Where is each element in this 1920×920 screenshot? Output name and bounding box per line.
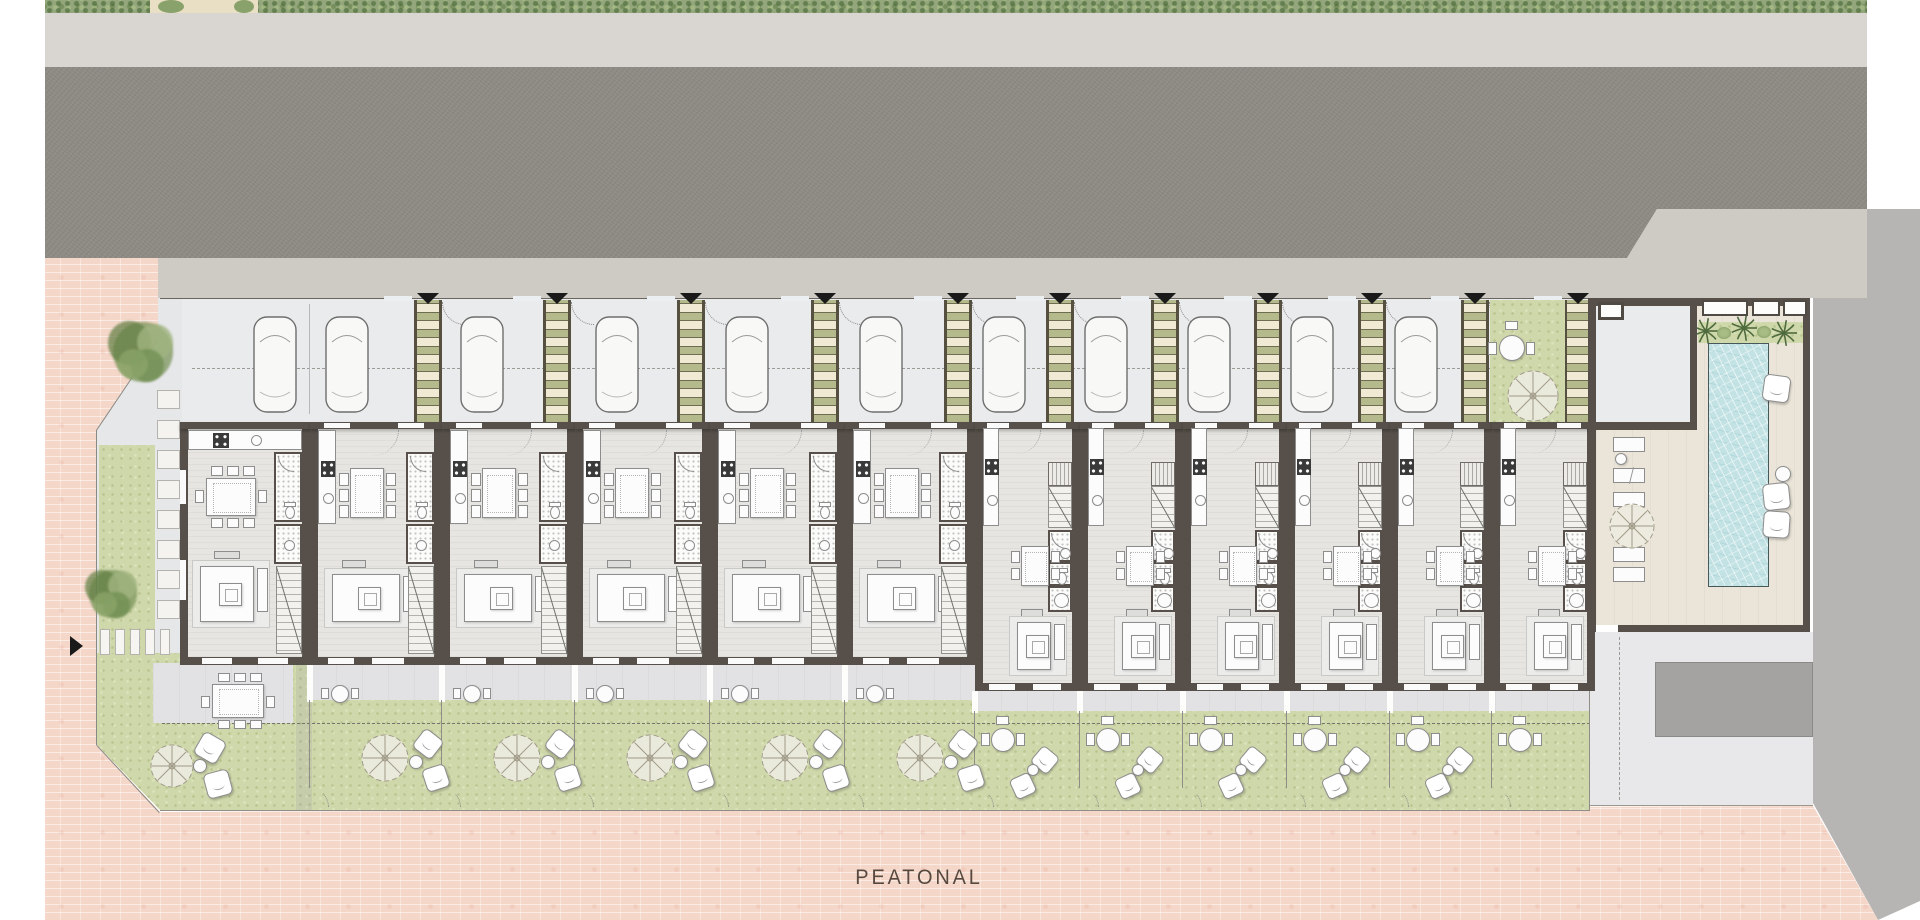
entry-door-gap bbox=[398, 423, 424, 428]
chair bbox=[1323, 568, 1332, 580]
chair bbox=[721, 688, 729, 699]
site-plan: PEATONAL bbox=[0, 0, 1920, 920]
table-top-detail bbox=[890, 475, 916, 513]
crosswalk-bar bbox=[100, 629, 110, 655]
dining-table bbox=[615, 468, 649, 518]
entrance-pergola bbox=[944, 300, 972, 422]
side-table bbox=[1132, 764, 1144, 776]
parked-car-icon bbox=[859, 316, 903, 413]
chair bbox=[518, 489, 528, 502]
chair bbox=[921, 473, 931, 486]
chair bbox=[195, 490, 204, 503]
party-wall bbox=[434, 422, 442, 665]
party-wall bbox=[967, 422, 975, 665]
chair bbox=[874, 473, 884, 486]
chair bbox=[1363, 568, 1372, 580]
table-top-detail bbox=[213, 483, 251, 512]
terrace-divider bbox=[307, 663, 313, 702]
chair bbox=[1528, 568, 1537, 580]
shower-icon bbox=[813, 456, 829, 472]
chair bbox=[1259, 551, 1268, 563]
stove-icon bbox=[1297, 459, 1311, 475]
tree-canopy bbox=[118, 349, 148, 379]
garden-fence-bottom bbox=[160, 810, 1590, 811]
side-table bbox=[1235, 764, 1247, 776]
basin-icon bbox=[549, 540, 560, 551]
coffee-table bbox=[1234, 635, 1257, 658]
party-wall bbox=[575, 422, 583, 665]
cushion-fold bbox=[1330, 782, 1342, 793]
hall-closet bbox=[1358, 462, 1382, 486]
sun-lounger bbox=[1613, 547, 1645, 562]
pool-area-wall bbox=[1803, 298, 1810, 632]
pool-wall-window bbox=[1702, 300, 1748, 316]
shower-icon bbox=[1566, 533, 1582, 549]
basin-icon bbox=[819, 540, 830, 551]
chair bbox=[1204, 716, 1217, 725]
chair bbox=[604, 489, 614, 502]
chair bbox=[211, 466, 223, 476]
hall-closet bbox=[1048, 462, 1072, 486]
kitchen-counter bbox=[318, 430, 336, 524]
basin-icon bbox=[284, 540, 295, 551]
shrub-icon bbox=[1717, 327, 1731, 339]
bistro-table bbox=[463, 685, 481, 703]
chair bbox=[1101, 716, 1114, 725]
tree-canopy bbox=[93, 592, 117, 616]
chair bbox=[1156, 568, 1165, 580]
table-top-detail bbox=[487, 475, 513, 513]
stair-flight-line bbox=[676, 567, 703, 655]
stair-flight-line bbox=[1151, 487, 1176, 529]
stepping-stone bbox=[157, 510, 180, 529]
tv-unit bbox=[214, 551, 240, 559]
parked-car-icon bbox=[982, 316, 1026, 413]
coffee-table-detail bbox=[1549, 641, 1562, 654]
side-table bbox=[193, 759, 207, 773]
armchair bbox=[1159, 624, 1170, 660]
laundry bbox=[1460, 586, 1484, 612]
terrace-door-gap bbox=[1197, 684, 1223, 690]
terrace-divider bbox=[572, 663, 578, 702]
cushion-fold bbox=[202, 743, 216, 756]
kitchen-counter bbox=[1088, 428, 1104, 526]
facade-wall-top bbox=[180, 422, 310, 429]
stove-icon bbox=[1400, 459, 1414, 475]
dining-table bbox=[885, 468, 919, 518]
dining-table bbox=[1333, 546, 1361, 586]
garden-fence bbox=[1589, 691, 1590, 810]
coffee-table-detail bbox=[364, 593, 377, 606]
garden-fence bbox=[1079, 711, 1080, 788]
basin-icon bbox=[455, 493, 466, 504]
sun-lounger bbox=[1613, 567, 1645, 582]
dining-table bbox=[350, 468, 384, 518]
stove-icon bbox=[721, 461, 735, 477]
pool-parking-spot bbox=[1596, 306, 1690, 422]
cushion-fold bbox=[965, 774, 978, 785]
entry-marker-icon bbox=[1257, 293, 1279, 304]
garden-table bbox=[1303, 728, 1327, 752]
party-wall bbox=[1390, 422, 1398, 691]
coffee-table-detail bbox=[225, 589, 238, 602]
party-wall bbox=[1492, 422, 1500, 691]
tv-unit bbox=[742, 560, 766, 568]
chair bbox=[856, 688, 864, 699]
party-wall bbox=[1183, 422, 1191, 691]
armchair bbox=[257, 568, 268, 612]
parked-car-icon bbox=[1290, 316, 1334, 413]
garden-table bbox=[1406, 728, 1430, 752]
terrace-divider bbox=[972, 691, 978, 713]
stair-flight-line bbox=[1048, 487, 1073, 529]
entry-door-gap bbox=[1454, 423, 1478, 428]
entry-marker-icon bbox=[1154, 293, 1176, 304]
chair bbox=[351, 688, 359, 699]
chair bbox=[1505, 321, 1518, 330]
crosswalk-bar bbox=[130, 629, 140, 655]
chair bbox=[1488, 342, 1497, 355]
chair bbox=[211, 518, 223, 528]
toilet-icon bbox=[950, 506, 960, 519]
stair-flight-line bbox=[1358, 487, 1383, 529]
bathroom bbox=[539, 524, 567, 564]
chair bbox=[604, 505, 614, 518]
stove-icon bbox=[1193, 459, 1207, 475]
laundry bbox=[1151, 586, 1175, 612]
garden-fence bbox=[309, 700, 310, 788]
kitchen-counter bbox=[1398, 428, 1414, 526]
cushion-fold bbox=[1433, 782, 1445, 793]
crosswalk-bar bbox=[145, 629, 155, 655]
stair-flight-line bbox=[941, 567, 968, 655]
entry-marker-icon bbox=[1049, 293, 1071, 304]
cushion-fold bbox=[820, 739, 833, 752]
terrace-divider bbox=[842, 663, 848, 702]
double-spot-divider bbox=[309, 304, 310, 414]
table-top-detail bbox=[1233, 552, 1255, 583]
cushion-fold bbox=[1018, 782, 1030, 793]
coffee-table bbox=[490, 587, 513, 610]
cushion-fold bbox=[212, 780, 226, 791]
party-wall bbox=[310, 422, 318, 665]
entry-arrow-icon bbox=[70, 636, 83, 656]
pool-parasol bbox=[1609, 503, 1655, 549]
chair bbox=[266, 696, 275, 708]
party-wall bbox=[1484, 422, 1492, 691]
chair bbox=[921, 489, 931, 502]
patio-table bbox=[1499, 335, 1525, 361]
stove-icon bbox=[856, 461, 870, 477]
stair-flight-line bbox=[408, 567, 435, 655]
coffee-table-detail bbox=[1447, 641, 1460, 654]
staircase bbox=[676, 566, 702, 654]
cushion-fold bbox=[552, 739, 565, 752]
dining-table bbox=[1538, 546, 1566, 586]
bistro-table bbox=[866, 685, 884, 703]
towel-line bbox=[1628, 467, 1633, 484]
staircase bbox=[1255, 486, 1279, 528]
coffee-table bbox=[1543, 635, 1566, 658]
entrance-pergola bbox=[1461, 300, 1489, 422]
staircase bbox=[811, 566, 837, 654]
armchair bbox=[1262, 624, 1273, 660]
party-wall bbox=[1287, 422, 1295, 691]
basin-icon bbox=[1195, 495, 1206, 506]
side-table bbox=[541, 755, 555, 769]
chair bbox=[996, 716, 1009, 725]
table-top-detail bbox=[219, 689, 259, 715]
terrace-door-gap bbox=[1033, 684, 1061, 690]
entrance-pergola bbox=[811, 300, 839, 422]
chair bbox=[1466, 551, 1475, 563]
stove-icon bbox=[1090, 459, 1104, 475]
entrance-pergola bbox=[1254, 300, 1282, 422]
chair bbox=[518, 505, 528, 518]
washer-icon bbox=[1054, 593, 1069, 608]
washer-icon bbox=[1364, 593, 1379, 608]
terrace-divider bbox=[707, 663, 713, 702]
basin-icon bbox=[323, 493, 334, 504]
stair-flight-line bbox=[541, 567, 568, 655]
stepping-stone bbox=[157, 600, 180, 619]
bistro-table bbox=[731, 685, 749, 703]
coffee-table bbox=[1338, 635, 1361, 658]
basin-icon bbox=[858, 493, 869, 504]
basin-icon bbox=[987, 495, 998, 506]
coffee-table bbox=[1026, 635, 1049, 658]
terrace-door-gap bbox=[1404, 684, 1430, 690]
chair bbox=[981, 733, 990, 746]
basin-icon bbox=[949, 540, 960, 551]
cushion-fold bbox=[1226, 782, 1238, 793]
terrace-door-gap bbox=[258, 658, 288, 664]
hall-closet bbox=[1563, 462, 1587, 486]
chair bbox=[786, 473, 796, 486]
chair bbox=[1528, 551, 1537, 563]
dining-table bbox=[1021, 546, 1049, 586]
terrace-door-gap bbox=[863, 658, 889, 664]
chair bbox=[786, 489, 796, 502]
stair-flight-line bbox=[1563, 487, 1588, 529]
kitchen-counter bbox=[1191, 428, 1207, 526]
pool-area-wall bbox=[1618, 625, 1810, 632]
terrace-door-gap bbox=[504, 658, 536, 664]
bathroom bbox=[674, 524, 702, 564]
side-window-gap bbox=[180, 560, 186, 600]
chair bbox=[1513, 716, 1526, 725]
chair bbox=[471, 473, 481, 486]
chair bbox=[1121, 733, 1130, 746]
bathroom bbox=[274, 452, 302, 522]
hall-closet bbox=[1151, 462, 1175, 486]
laundry bbox=[1255, 586, 1279, 612]
coffee-table-detail bbox=[629, 593, 642, 606]
chair bbox=[1466, 568, 1475, 580]
chair bbox=[386, 489, 396, 502]
staircase bbox=[276, 566, 302, 654]
terrace-divider bbox=[439, 663, 445, 702]
chair bbox=[386, 505, 396, 518]
coffee-table-detail bbox=[1240, 641, 1253, 654]
armchair bbox=[1469, 624, 1480, 660]
cushion-fold bbox=[1123, 782, 1135, 793]
washer-icon bbox=[1261, 593, 1276, 608]
entry-marker-icon bbox=[1361, 293, 1383, 304]
basin-icon bbox=[251, 435, 262, 446]
kitchen-counter bbox=[1295, 428, 1311, 526]
party-wall bbox=[1072, 422, 1080, 691]
chair bbox=[751, 688, 759, 699]
party-wall bbox=[1279, 422, 1287, 691]
side-table bbox=[809, 755, 823, 769]
cushion-fold bbox=[430, 774, 443, 785]
lounge-cushion bbox=[1761, 373, 1791, 403]
chair bbox=[1016, 733, 1025, 746]
terrace-door-gap bbox=[637, 658, 669, 664]
entry-marker-icon bbox=[947, 293, 969, 304]
chair bbox=[234, 720, 246, 729]
washer-icon bbox=[1157, 593, 1172, 608]
walkway-dashed-line bbox=[1619, 637, 1620, 800]
chair bbox=[1219, 568, 1228, 580]
stepping-stone bbox=[157, 390, 180, 409]
cushion-fold bbox=[1038, 755, 1050, 767]
chair bbox=[1411, 716, 1424, 725]
garden-parasol bbox=[361, 734, 409, 782]
entrance-gate-gap bbox=[781, 296, 809, 301]
party-wall bbox=[710, 422, 718, 665]
side-table bbox=[1339, 764, 1351, 776]
party-wall bbox=[837, 422, 845, 665]
facade-wall-bottom bbox=[180, 657, 310, 665]
tv-unit bbox=[877, 560, 901, 568]
entry-door-gap bbox=[1557, 423, 1581, 428]
chair bbox=[1323, 551, 1332, 563]
chair bbox=[234, 673, 246, 682]
chair bbox=[1526, 342, 1535, 355]
chair bbox=[1533, 733, 1542, 746]
party-wall bbox=[1175, 422, 1183, 691]
stair-flight-line bbox=[811, 567, 838, 655]
dining-table bbox=[482, 468, 516, 518]
party-wall bbox=[567, 422, 575, 665]
table-top-detail bbox=[1337, 552, 1359, 583]
side-table bbox=[674, 755, 688, 769]
terrace-door-gap bbox=[202, 658, 232, 664]
staircase bbox=[1151, 486, 1175, 528]
lounge-cushion bbox=[1762, 510, 1791, 539]
terrace-door-gap bbox=[372, 658, 404, 664]
chair bbox=[339, 505, 349, 518]
walkway-edge-line bbox=[1590, 805, 1813, 806]
stepping-stone bbox=[157, 420, 180, 439]
parked-car-icon bbox=[1084, 316, 1128, 413]
cushion-fold bbox=[695, 774, 708, 785]
dining-table bbox=[750, 468, 784, 518]
chair bbox=[1498, 733, 1507, 746]
table-top-detail bbox=[620, 475, 646, 513]
chair bbox=[739, 505, 749, 518]
side-table bbox=[1615, 453, 1627, 465]
coffee-table bbox=[893, 587, 916, 610]
garden-parasol bbox=[761, 734, 809, 782]
basin-icon bbox=[1504, 495, 1515, 506]
chair bbox=[201, 696, 210, 708]
terrace-door-gap bbox=[328, 658, 354, 664]
chair bbox=[651, 473, 661, 486]
party-wall bbox=[1080, 422, 1088, 691]
chair bbox=[1308, 716, 1321, 725]
table-top-detail bbox=[1542, 552, 1564, 583]
basin-icon bbox=[1060, 548, 1071, 559]
terrace-door-gap bbox=[460, 658, 486, 664]
sidewalk-top bbox=[45, 13, 1867, 67]
coffee-table-detail bbox=[899, 593, 912, 606]
chair bbox=[1086, 733, 1095, 746]
shower-icon bbox=[1258, 533, 1274, 549]
garden-fence bbox=[1389, 711, 1390, 788]
entrance-pergola bbox=[414, 300, 442, 422]
terrace-door-gap bbox=[1550, 684, 1578, 690]
garden-table bbox=[1199, 728, 1223, 752]
entrance-pergola bbox=[1046, 300, 1074, 422]
tv-unit bbox=[607, 560, 631, 568]
terrace-divider bbox=[1077, 691, 1083, 713]
chair bbox=[1363, 551, 1372, 563]
chair bbox=[1328, 733, 1337, 746]
stair-flight-line bbox=[276, 567, 303, 655]
chair bbox=[1116, 568, 1125, 580]
left-lawn-strip bbox=[99, 445, 155, 653]
basin-icon bbox=[1299, 495, 1310, 506]
outdoor-dining-table bbox=[212, 684, 264, 718]
chair bbox=[243, 466, 255, 476]
parked-car-icon bbox=[325, 316, 369, 413]
bathroom bbox=[539, 452, 567, 522]
chair bbox=[1156, 551, 1165, 563]
parked-car-icon bbox=[253, 316, 297, 413]
entrance-gate-gap bbox=[384, 296, 412, 301]
terrace-door-gap bbox=[593, 658, 619, 664]
front-window-gap bbox=[456, 423, 482, 428]
basin-icon bbox=[1267, 548, 1278, 559]
entry-door-gap bbox=[1352, 423, 1376, 428]
table-top-detail bbox=[1025, 552, 1047, 583]
entry-marker-icon bbox=[1567, 293, 1589, 304]
coffee-table-detail bbox=[496, 593, 509, 606]
chair bbox=[1426, 568, 1435, 580]
chair bbox=[1293, 733, 1302, 746]
armchair bbox=[1054, 624, 1065, 660]
dining-table bbox=[1436, 546, 1464, 586]
table-top-detail bbox=[1130, 552, 1152, 583]
stove-icon bbox=[453, 461, 467, 477]
utility-box bbox=[1598, 302, 1624, 320]
cushion-fold bbox=[1350, 755, 1362, 767]
dining-table bbox=[1229, 546, 1257, 586]
chair bbox=[218, 720, 230, 729]
garden-fence bbox=[1491, 711, 1492, 788]
pool-wall-window bbox=[1752, 300, 1780, 316]
coffee-table-detail bbox=[1137, 641, 1150, 654]
garden-dashed-line bbox=[162, 723, 1590, 724]
kitchen-counter bbox=[983, 428, 999, 526]
terrace-door-gap bbox=[1345, 684, 1373, 690]
front-window-gap bbox=[859, 423, 885, 428]
chair bbox=[874, 489, 884, 502]
chair bbox=[321, 688, 329, 699]
